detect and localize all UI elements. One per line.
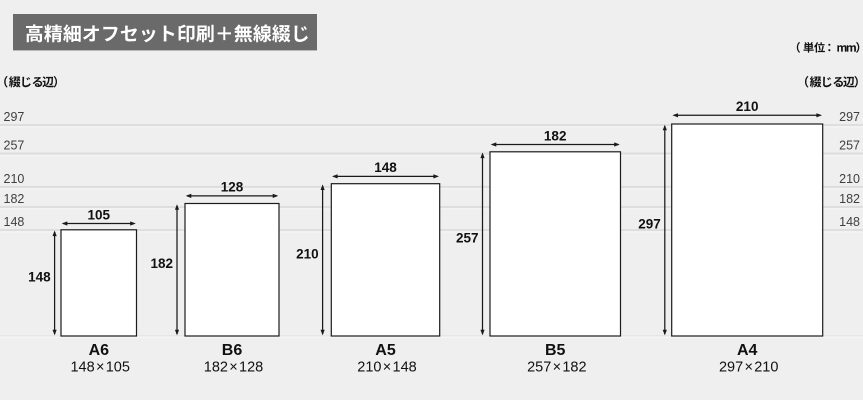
svg-text:297×210: 297×210 [719,359,778,375]
svg-text:A5: A5 [375,342,396,359]
svg-text:210: 210 [296,246,319,261]
svg-text:297: 297 [839,110,860,124]
svg-text:297: 297 [638,217,661,232]
svg-text:B5: B5 [545,342,566,359]
svg-text:257: 257 [839,139,860,153]
svg-text:A6: A6 [89,342,110,359]
svg-text:182×128: 182×128 [204,359,263,375]
svg-text:148: 148 [839,215,860,229]
svg-text:148: 148 [374,160,397,175]
svg-text:148: 148 [4,215,25,229]
svg-text:210: 210 [4,172,25,186]
svg-text:297: 297 [4,110,25,124]
svg-text:182: 182 [544,128,567,143]
svg-text:257×182: 257×182 [527,359,586,375]
svg-text:210×148: 210×148 [357,359,416,375]
svg-text:A4: A4 [737,342,758,359]
svg-text:257: 257 [4,139,25,153]
svg-text:128: 128 [221,180,244,195]
svg-text:210: 210 [736,99,759,114]
svg-text:182: 182 [839,192,860,206]
svg-text:148×105: 148×105 [70,359,129,375]
svg-text:148: 148 [28,269,51,284]
svg-text:182: 182 [150,256,173,271]
svg-text:257: 257 [456,230,479,245]
svg-text:105: 105 [88,207,111,222]
svg-text:210: 210 [839,172,860,186]
svg-text:B6: B6 [222,342,243,359]
svg-text:182: 182 [4,192,25,206]
